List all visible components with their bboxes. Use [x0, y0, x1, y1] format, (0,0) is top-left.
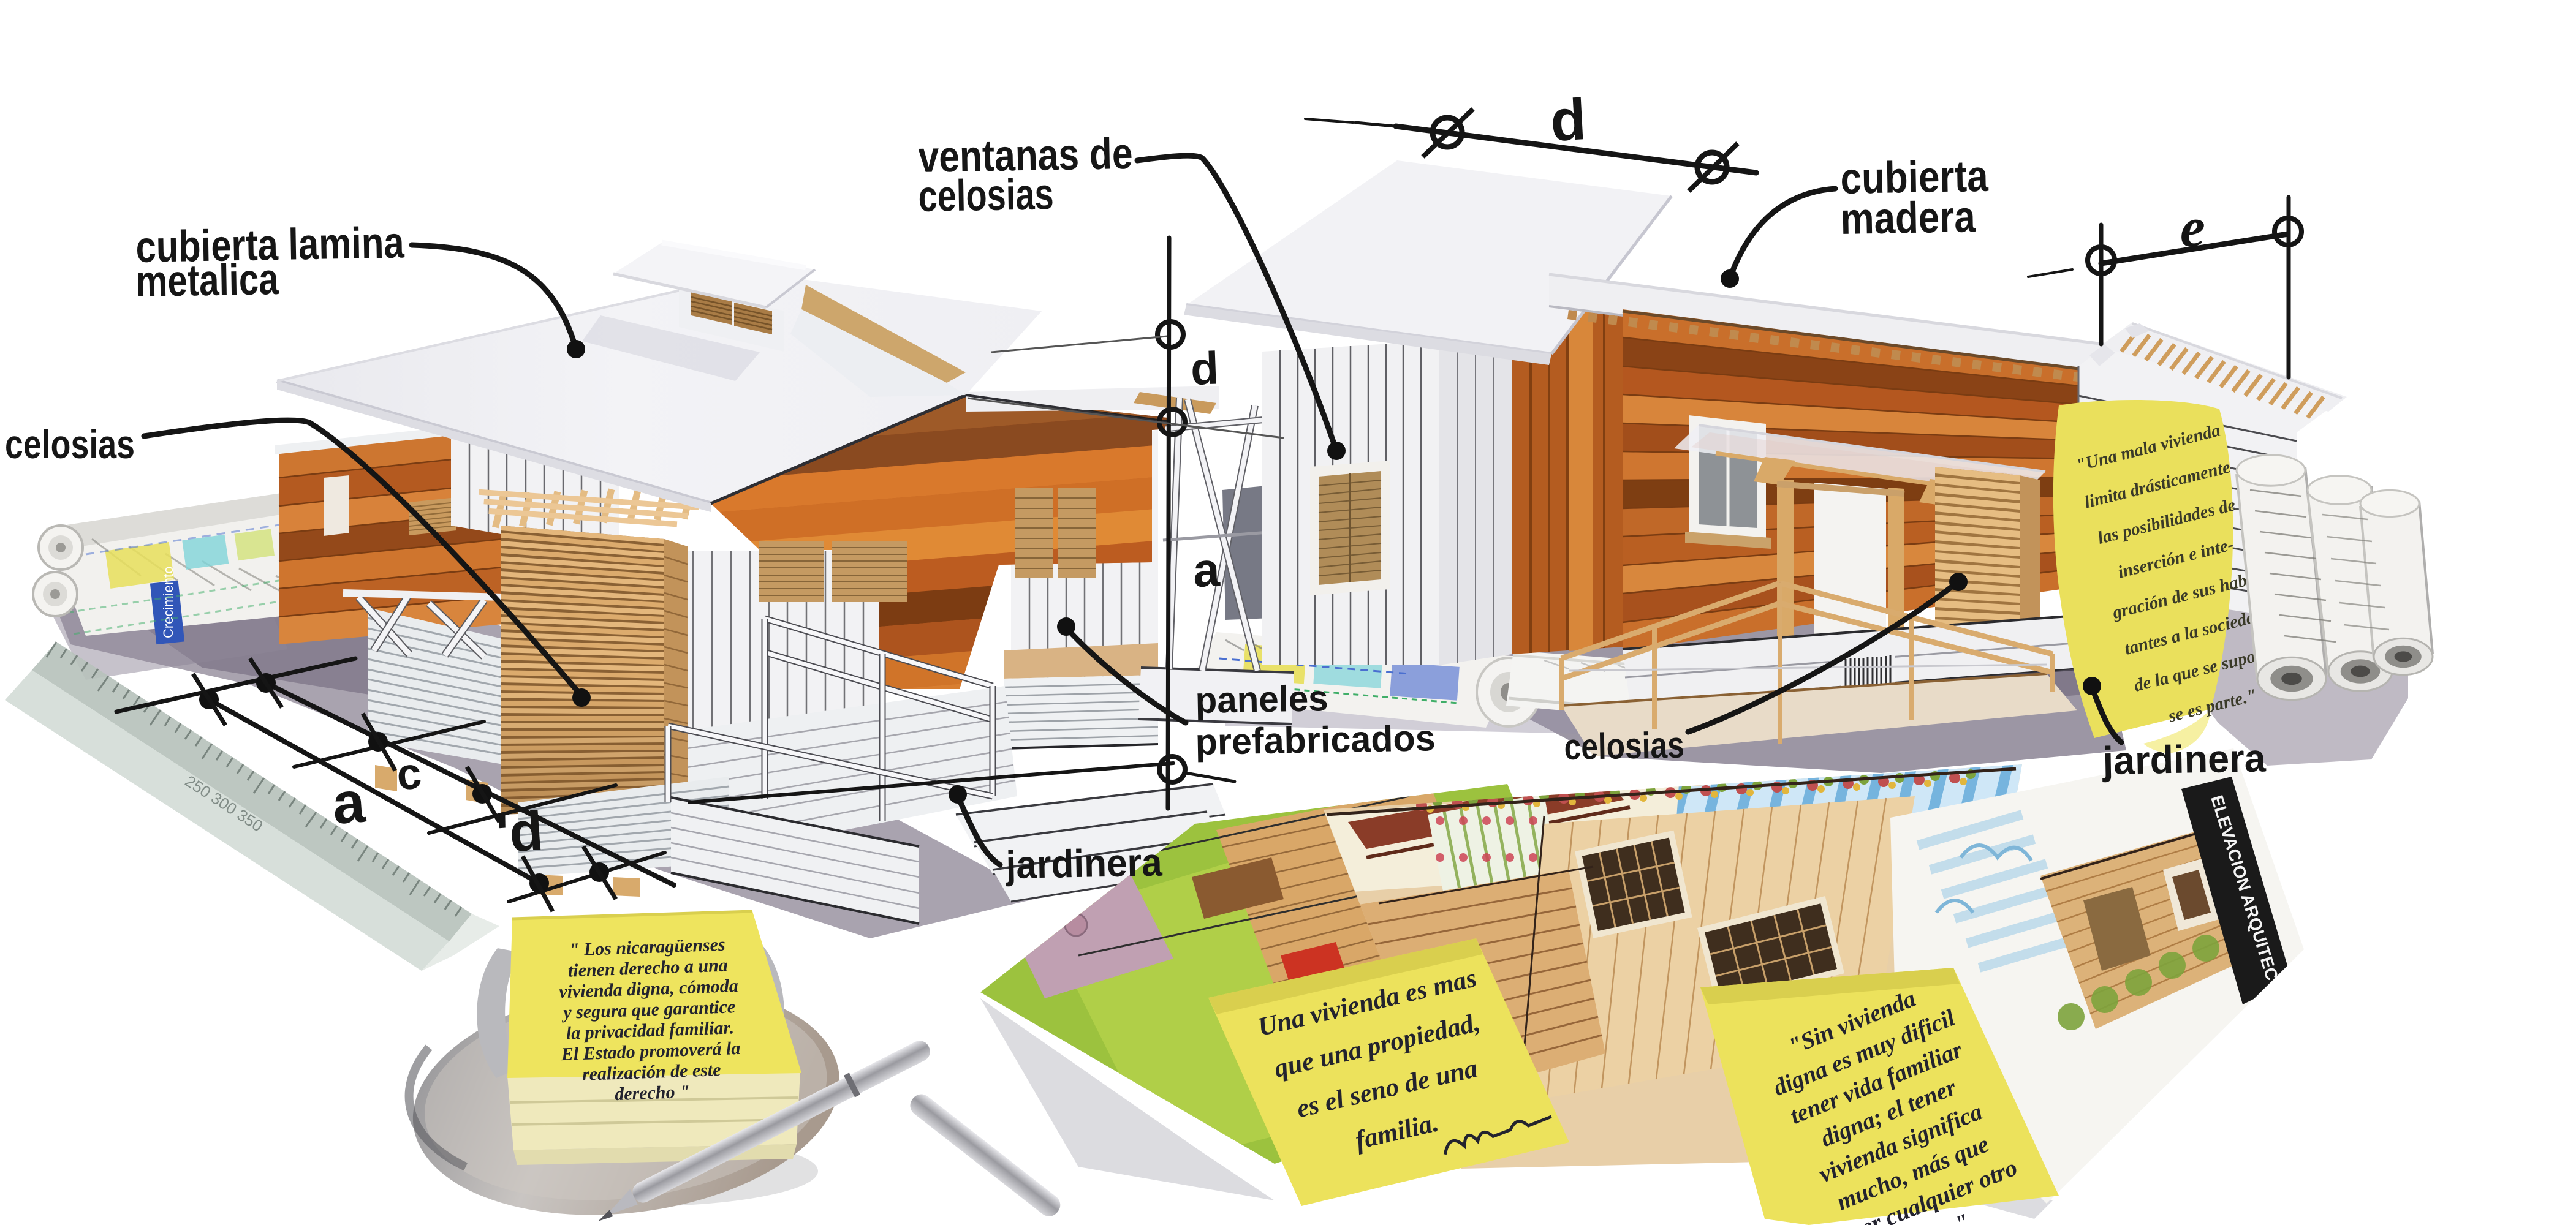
svg-text:metalica: metalica — [135, 255, 279, 306]
svg-text:'d: 'd — [494, 801, 545, 865]
svg-text:Crecimiento: Crecimiento — [161, 567, 176, 638]
svg-text:c: c — [394, 748, 423, 800]
svg-text:a: a — [1192, 543, 1221, 597]
svg-text:jardinera: jardinera — [2102, 736, 2267, 783]
svg-text:celosias: celosias — [5, 421, 135, 467]
svg-text:madera: madera — [1840, 192, 1976, 244]
svg-text:e: e — [2180, 196, 2205, 258]
svg-text:d: d — [1549, 87, 1588, 154]
svg-text:prefabricados: prefabricados — [1195, 717, 1436, 763]
svg-text:derecho ": derecho " — [615, 1082, 691, 1104]
svg-text:celosias: celosias — [918, 170, 1054, 221]
svg-text:paneles: paneles — [1195, 677, 1328, 721]
svg-text:d: d — [1190, 342, 1220, 394]
svg-text:celosias: celosias — [1564, 725, 1684, 767]
svg-text:jardinera: jardinera — [1005, 840, 1163, 887]
svg-text:a: a — [330, 769, 368, 837]
